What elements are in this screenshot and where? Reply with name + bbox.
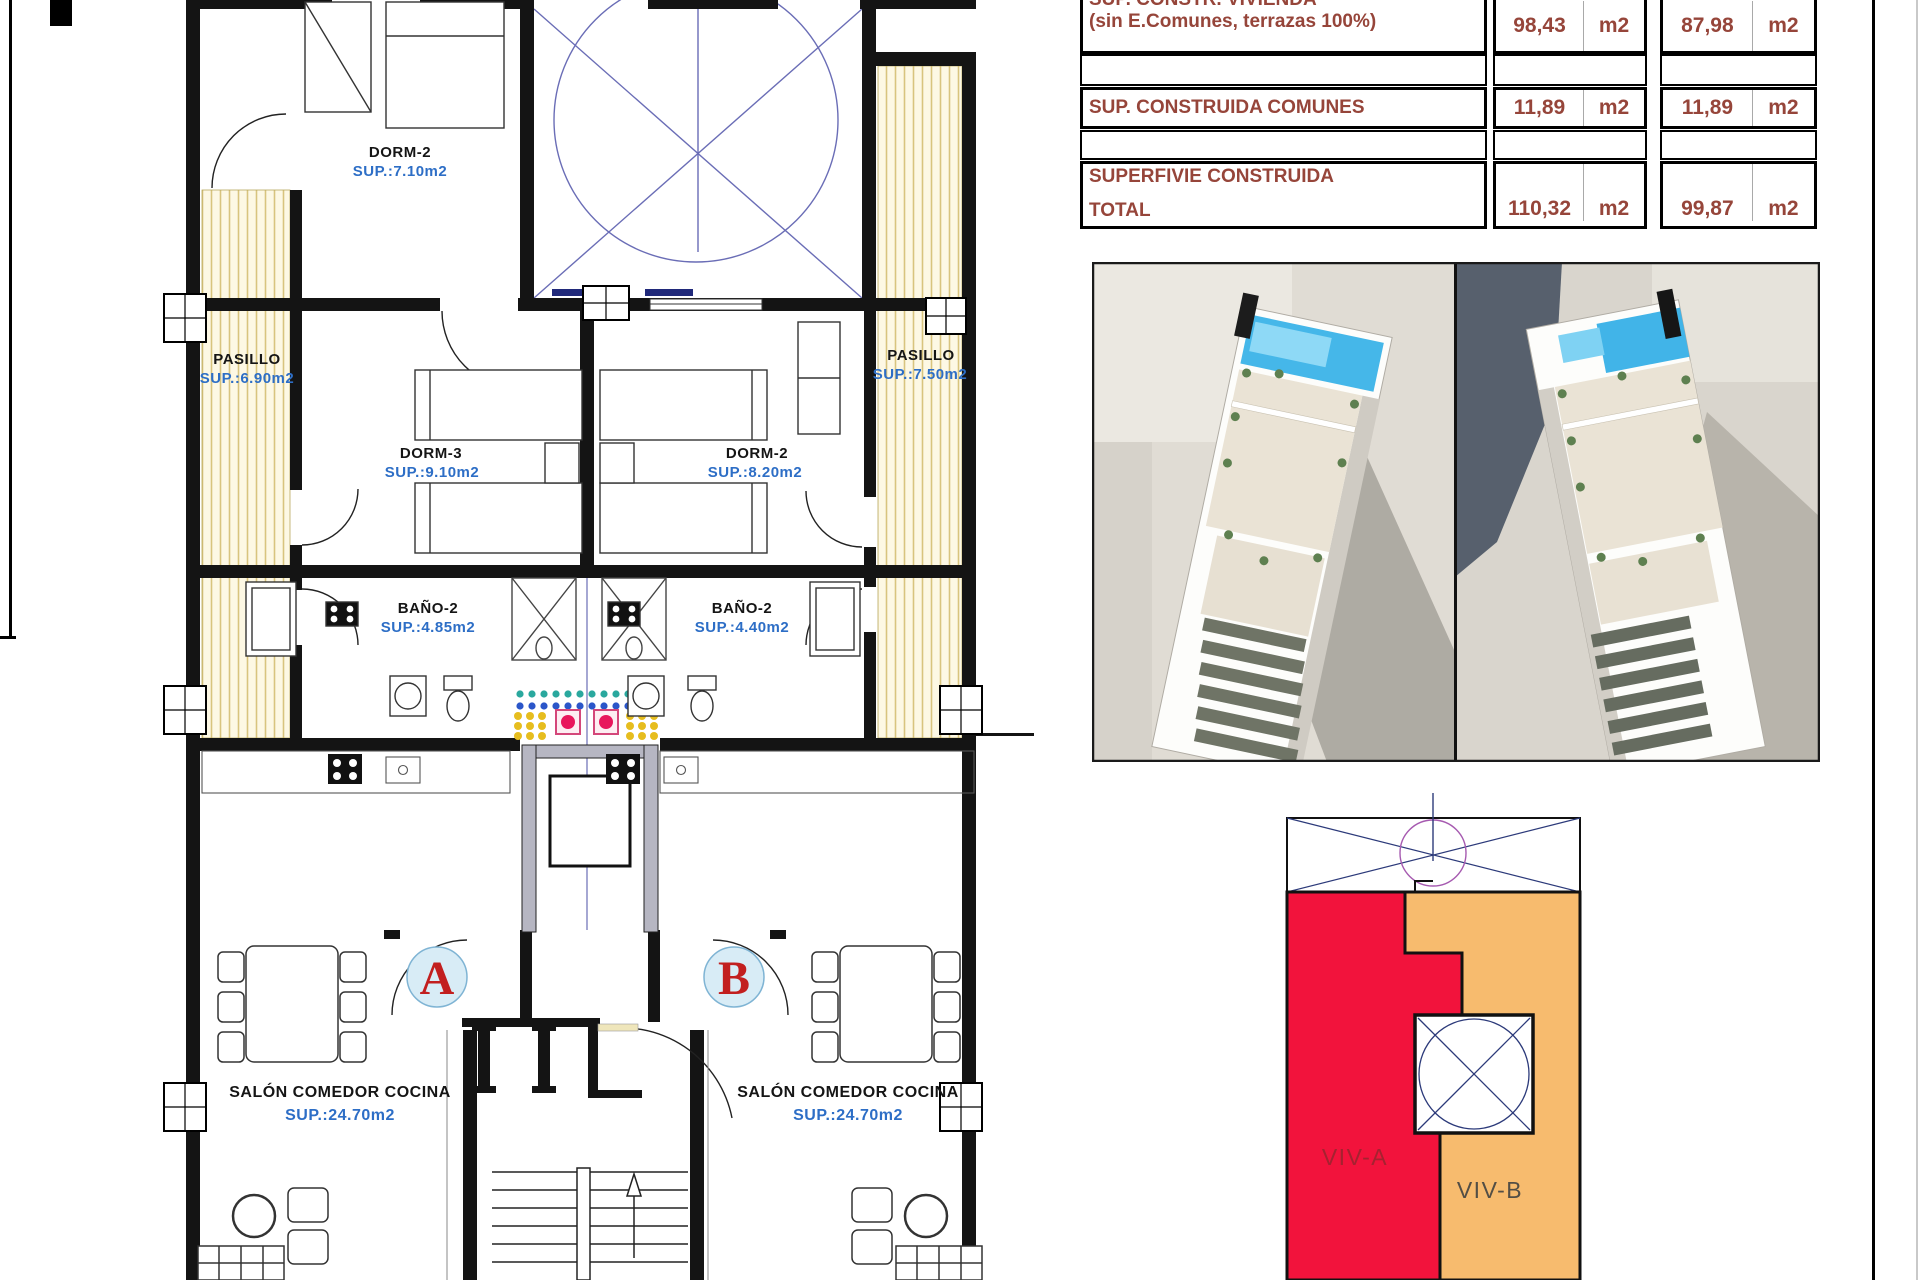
table-cell-value: 98,43 <box>1496 14 1583 38</box>
elevator-car <box>550 776 630 866</box>
room-sup: SUP.:24.70m2 <box>285 1107 395 1124</box>
sheet-edge-line <box>1916 0 1918 1280</box>
table-cell-unit: m2 <box>1753 14 1814 38</box>
table-cell-value: 11,89 <box>1496 96 1583 120</box>
sofa-left <box>198 1246 284 1280</box>
room-sup: SUP.:8.20m2 <box>708 464 802 481</box>
table-cell-unit: m2 <box>1584 14 1644 38</box>
table-cell-text: (sin E.Comunes, terrazas 100%) <box>1089 11 1478 33</box>
table-cell-unit: m2 <box>1753 197 1814 221</box>
sheet-margin-marks <box>0 0 72 639</box>
building-renders <box>1092 262 1820 762</box>
table-row3-vivb: 99,87 m2 <box>1660 161 1817 229</box>
room-sup: SUP.:7.50m2 <box>873 366 967 383</box>
table-row1-vivb: 87,98 m2 <box>1660 0 1817 54</box>
unit-key-diagram: VIV-A VIV-B <box>1285 793 1585 1280</box>
room-sup: SUP.:9.10m2 <box>385 464 479 481</box>
pasillo-hatch-right <box>878 66 962 738</box>
room-sup: SUP.:4.40m2 <box>695 619 789 636</box>
room-label: SALÓN COMEDOR COCINA <box>737 1082 959 1101</box>
table-row1-viva: 98,43 m2 <box>1493 0 1647 54</box>
unit-a-letter: A <box>420 952 455 1005</box>
table-cell-value: 99,87 <box>1663 197 1752 221</box>
diagram-elevator <box>1415 1015 1533 1133</box>
wall-door-gap <box>440 296 518 313</box>
table-row2-label: SUP. CONSTRUIDA COMUNES <box>1080 87 1487 129</box>
room-label: DORM-2 <box>369 144 431 161</box>
table-cell-unit: m2 <box>1753 96 1814 120</box>
plan-sheet-page: A B DORM-2 SUP.:7.10m2 PASILLO SUP.:6.90… <box>0 0 1920 1280</box>
room-label: DORM-2 <box>726 445 788 462</box>
room-sup: SUP.:24.70m2 <box>793 1107 903 1124</box>
shower-stalls <box>512 578 666 660</box>
table-cell-unit: m2 <box>1584 96 1644 120</box>
table-row1-label: SUP. CONSTR. VIVIENDA (sin E.Comunes, te… <box>1080 0 1487 54</box>
table-cell-text: SUP. CONSTRUIDA COMUNES <box>1089 97 1478 119</box>
room-sup: SUP.:6.90m2 <box>200 370 294 387</box>
stairwell-circle <box>534 0 862 298</box>
room-label: PASILLO <box>213 351 280 368</box>
render-right <box>1455 262 1820 762</box>
table-cell-text: SUPERFIVIE CONSTRUIDA <box>1089 166 1478 188</box>
table-cell-text: SUP. CONSTR. VIVIENDA <box>1089 0 1478 11</box>
table-cell-text: TOTAL <box>1089 200 1478 222</box>
diagram-top-box <box>1287 793 1580 892</box>
room-sup: SUP.:7.10m2 <box>353 163 447 180</box>
table-cell-value: 87,98 <box>1663 14 1752 38</box>
table-row3-viva: 110,32 m2 <box>1493 161 1647 229</box>
room-label: SALÓN COMEDOR COCINA <box>229 1082 451 1101</box>
room-label: PASILLO <box>887 347 954 364</box>
room-label: BAÑO-2 <box>712 599 773 617</box>
table-row3-label: SUPERFIVIE CONSTRUIDA TOTAL <box>1080 161 1487 229</box>
table-cell-value: 110,32 <box>1496 197 1583 221</box>
viv-a-label: VIV-A <box>1322 1144 1388 1170</box>
sofa-right <box>896 1246 982 1280</box>
floor-plan: A B DORM-2 SUP.:7.10m2 PASILLO SUP.:6.90… <box>0 0 1080 1280</box>
table-cell-value: 11,89 <box>1663 96 1752 120</box>
render-divider <box>1454 262 1457 762</box>
table-row2-vivb: 11,89 m2 <box>1660 87 1817 129</box>
table-cell-unit: m2 <box>1584 197 1644 221</box>
sheet-border-line <box>1872 0 1875 1280</box>
table-row2-viva: 11,89 m2 <box>1493 87 1647 129</box>
viv-b-label: VIV-B <box>1457 1177 1523 1203</box>
render-left <box>1092 262 1455 762</box>
unit-b-letter: B <box>718 952 750 1005</box>
room-label: BAÑO-2 <box>398 599 459 617</box>
room-sup: SUP.:4.85m2 <box>381 619 475 636</box>
area-table: SUP. CONSTR. VIVIENDA (sin E.Comunes, te… <box>1080 0 1820 232</box>
room-label: DORM-3 <box>400 445 462 462</box>
unit-markers: A B <box>407 947 764 1007</box>
